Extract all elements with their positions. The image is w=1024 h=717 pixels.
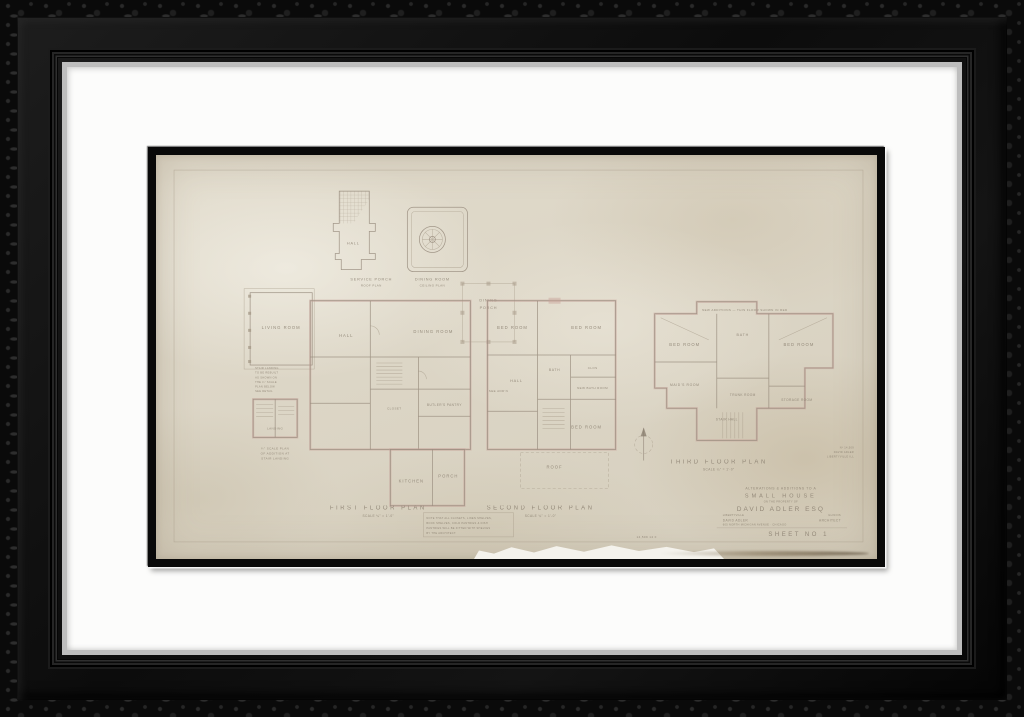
room-label-roof: ROOF <box>546 465 562 470</box>
room-label-closet: CLOSET <box>387 406 401 410</box>
stair-note-6: SEE DETAIL <box>255 389 273 393</box>
stamp-line-2: DAVID ADLER <box>834 450 854 454</box>
title-line-1: ALTERATIONS & ADDITIONS TO A <box>745 487 816 491</box>
room-label-storage-room: STORAGE ROOM <box>781 398 812 402</box>
third-floor-stairs <box>723 412 743 438</box>
rosette-spokes <box>422 229 442 249</box>
drawing-sheet: HALL SERVICE PORCH ROOF PLAN DINING ROO <box>148 147 885 567</box>
stair-note-1: STAIR LANDING <box>255 366 279 370</box>
dining-ceiling-plan: DINING ROOM CEILING PLAN <box>407 207 467 287</box>
pencil-note: 14,509 14 F <box>636 535 656 539</box>
blueprint-linework: HALL SERVICE PORCH ROOF PLAN DINING ROO <box>156 155 877 559</box>
door-swing-1 <box>370 326 379 335</box>
room-label-hall-tower: HALL <box>347 241 360 245</box>
chimney <box>549 298 561 304</box>
stair-note-5: PLAN BELOW <box>255 385 275 389</box>
service-porch-subcaption: ROOF PLAN <box>361 284 382 288</box>
room-label-bedroom-3: BED ROOM <box>571 424 602 429</box>
room-label-bedroom-1: BED ROOM <box>497 325 528 330</box>
second-floor-stairs <box>543 408 565 428</box>
room-label-butlers-pantry: BUTLER'S PANTRY <box>427 403 462 407</box>
sheet-number: SHEET NO 1 <box>768 532 829 538</box>
room-label-living-room: LIVING ROOM <box>262 325 301 330</box>
framed-architectural-drawing: HALL SERVICE PORCH ROOF PLAN DINING ROO <box>0 0 1024 717</box>
third-floor-caption: THIRD FLOOR PLAN <box>670 460 768 466</box>
first-floor-scale: SCALE ¼" = 1'-0" <box>363 514 395 518</box>
room-label-clos: CLOS <box>588 366 598 370</box>
room-label-bath-2: BATH <box>737 333 750 337</box>
stair-landing-detail: STAIR LANDING TO BE REBUILT AS SHOWN ON … <box>253 366 297 460</box>
room-label-new-bathroom: NEW BATH ROOM <box>577 386 608 390</box>
stair-caption-2: OF ADDITION AT <box>261 451 290 455</box>
notes-line-1: NOTE THAT ALL CLOSETS, LINEN SHELVES, <box>426 516 492 520</box>
service-porch-caption: SERVICE PORCH <box>350 278 392 282</box>
title-architect-role: ARCHITECT <box>819 518 841 522</box>
room-label-bedroom-2: BED ROOM <box>571 325 602 330</box>
first-floor-caption: FIRST FLOOR PLAN <box>330 506 427 512</box>
first-floor-plan: LIVING ROOM <box>244 289 513 537</box>
dining-ceiling-subcaption: CEILING PLAN <box>420 284 445 288</box>
third-floor-scale: SCALE ¼" = 1'-0" <box>703 468 735 472</box>
archive-stamp: Nº 14,509 DAVID ADLER LIBERTYVILLE ILL <box>827 445 854 458</box>
roof-outline <box>521 452 609 488</box>
stair-note-3: AS SHOWN ON <box>255 375 277 379</box>
title-client-name: DAVID ADLER ESQ <box>737 506 825 513</box>
third-floor-annotation: NEW ADDITIONS — THIS FLOOR SHOWN IN RED <box>702 308 788 312</box>
living-porch-columns <box>248 295 251 363</box>
notes-line-2: BOOK SHELVES, COLD PANTRIES & DISH <box>426 521 488 525</box>
room-label-landing: LANDING <box>267 426 283 430</box>
stair-caption-3: STAIR LANDING <box>261 457 289 461</box>
stair-note-2: TO BE REBUILT <box>255 371 278 375</box>
stamp-line-1: Nº 14,509 <box>840 445 854 449</box>
room-label-dining-room: DINING ROOM <box>413 329 453 334</box>
first-floor-partitions <box>310 301 470 450</box>
room-label-maids-room: MAID'S ROOM <box>670 383 700 387</box>
stair-caption-1: ¼" SCALE PLAN <box>261 446 289 450</box>
room-label-bath: BATH <box>549 368 560 372</box>
second-floor-scale: SCALE ¼" = 1'-0" <box>525 514 557 518</box>
room-label-bedroom-5: BED ROOM <box>783 342 814 347</box>
room-label-hall: HALL <box>339 333 354 338</box>
room-label-kitchen: KITCHEN <box>399 479 424 484</box>
torn-edge-shadow <box>659 551 869 556</box>
title-architect-name: DAVID ADLER <box>723 518 749 522</box>
dining-ceiling-caption: DINING ROOM <box>415 278 450 282</box>
title-architect-address: 605 NORTH MICHIGAN AVENUE · CHICAGO <box>723 522 787 526</box>
title-block: ALTERATIONS & ADDITIONS TO A SMALL HOUSE… <box>717 487 847 538</box>
stair-note-4: THE ¼" SCALE <box>255 380 277 384</box>
title-line-2: SMALL HOUSE <box>745 494 817 500</box>
room-label-trunk-room: TRUNK ROOM <box>730 393 756 397</box>
second-floor-plan: BED ROOM BED ROOM HALL BATH CLOS NEW BAT… <box>487 298 616 518</box>
room-label-hall-2: HALL <box>510 379 523 383</box>
aged-paper: HALL SERVICE PORCH ROOF PLAN DINING ROO <box>156 155 877 559</box>
note-see-addn: SEE ADD'N <box>489 389 508 393</box>
title-line-3: ON THE PROPERTY OF <box>764 500 798 504</box>
second-floor-caption: SECOND FLOOR PLAN <box>487 506 595 512</box>
room-label-bedroom-4: BED ROOM <box>669 342 700 347</box>
notes-line-3: PANTRIES WILL BE FITTED WITH SHELVES <box>426 526 490 530</box>
room-label-porch: PORCH <box>438 474 458 479</box>
first-floor-stairs <box>376 363 402 384</box>
service-porch-roof-plan: HALL SERVICE PORCH ROOF PLAN <box>333 191 392 287</box>
notes-line-4: BY THE ARCHITECT. <box>426 531 456 535</box>
title-place-right: ILLINOIS <box>828 513 841 517</box>
stamp-line-3: LIBERTYVILLE ILL <box>827 454 854 458</box>
room-label-stair-hall: STAIR HALL <box>716 417 738 421</box>
title-place-left: LIBERTYVILLE <box>723 513 744 517</box>
third-floor-plan: NEW ADDITIONS — THIS FLOOR SHOWN IN RED … <box>655 302 833 472</box>
north-arrow <box>635 427 653 460</box>
door-swing-2 <box>418 371 426 379</box>
